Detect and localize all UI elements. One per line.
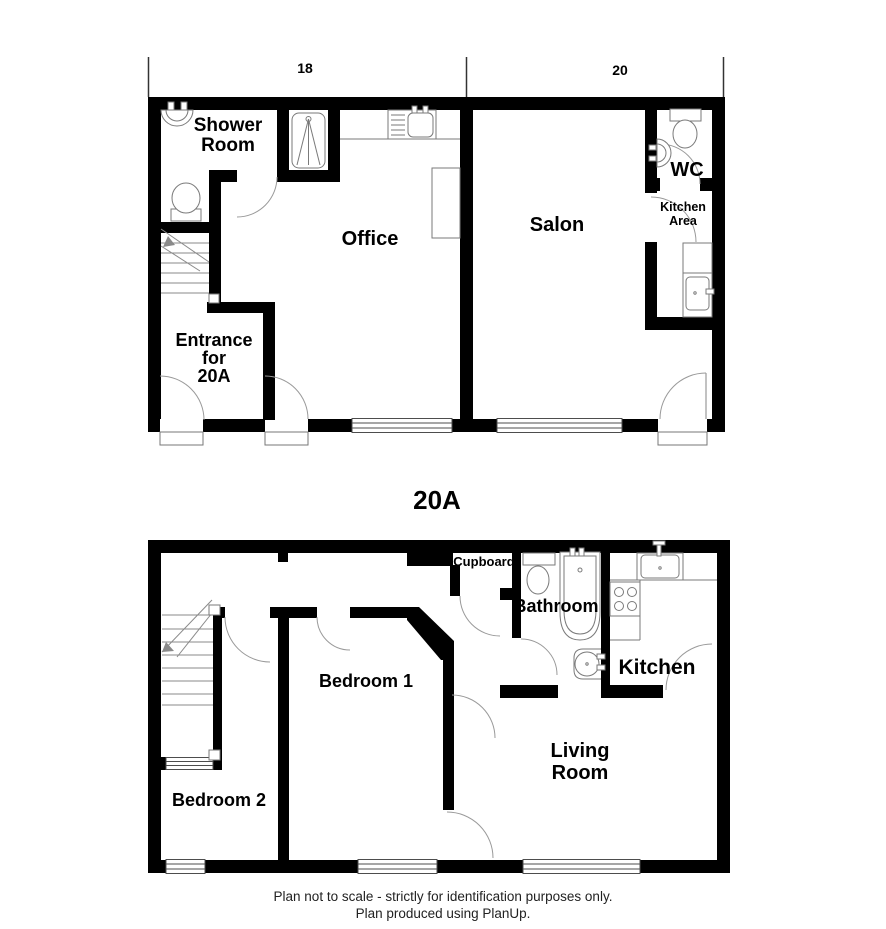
living-room-window: [523, 860, 640, 874]
footer-disclaimer: Plan not to scale - strictly for identif…: [274, 889, 613, 904]
floorplan-canvas: 18 20: [0, 0, 886, 929]
living-room-door-arc: [447, 812, 493, 858]
label-kitchen-area-line1: Kitchen: [660, 200, 706, 214]
cupboard-door-arc: [460, 596, 500, 636]
walls-lower: [148, 540, 730, 873]
label-kitchen: Kitchen: [618, 656, 695, 679]
hall-door-arc: [452, 695, 495, 738]
label-bedroom-2: Bedroom 2: [172, 790, 266, 810]
label-kitchen-area-line2: Area: [669, 214, 698, 228]
room-labels-upper: Shower Room Office Salon WC Kitchen Area…: [175, 115, 705, 386]
stairs-internal-window: [166, 758, 213, 770]
label-office: Office: [342, 228, 399, 250]
label-living-room-line1: Living: [551, 740, 610, 762]
dimension-label-20: 20: [612, 62, 628, 78]
hob-icon: [610, 580, 717, 640]
label-bathroom: Bathroom: [514, 596, 599, 616]
label-shower-room-line2: Room: [201, 135, 255, 156]
salon-door-threshold: [658, 432, 707, 445]
dimension-annotations: 18 20: [149, 57, 724, 97]
label-entrance-line1: Entrance: [175, 330, 252, 350]
label-entrance-line3: 20A: [197, 366, 230, 386]
bedroom2-window: [166, 860, 205, 874]
floorplan-page: 18 20: [0, 0, 886, 929]
shower-tray-icon: [292, 113, 325, 168]
dimension-label-18: 18: [297, 60, 313, 76]
stairs-lower-icon: [162, 600, 220, 760]
footer-credit: Plan produced using PlanUp.: [356, 906, 531, 921]
entrance-door-threshold: [160, 432, 203, 445]
bathroom-sink-icon: [574, 649, 605, 679]
shower-room-door-arc: [237, 177, 277, 217]
label-salon: Salon: [530, 214, 584, 236]
footer: Plan not to scale - strictly for identif…: [274, 889, 613, 921]
office-unit: [432, 168, 460, 238]
wc-toilet-icon: [670, 109, 701, 148]
doors-lower: [225, 596, 712, 858]
lower-floor-plan: 20A: [148, 485, 730, 874]
bedroom1-door-arc: [317, 617, 350, 650]
bedroom1-window: [358, 860, 437, 874]
office-sink-icon: [340, 106, 460, 139]
label-entrance-line2: for: [202, 348, 226, 368]
upper-floor-plan: 18 20: [148, 57, 725, 445]
label-cupboard: Cupboard: [453, 554, 514, 569]
lower-plan-title: 20A: [413, 485, 461, 515]
label-living-room-line2: Room: [552, 762, 609, 784]
kitchen-area-counter-icon: [683, 243, 714, 317]
bathroom-toilet-icon: [523, 553, 555, 594]
label-bedroom-1: Bedroom 1: [319, 671, 413, 691]
office-door-threshold: [265, 432, 308, 445]
bedroom2-door-arc: [225, 617, 270, 662]
label-wc: WC: [670, 159, 703, 181]
bathtub-icon: [560, 548, 600, 640]
label-shower-room-line1: Shower: [194, 115, 263, 136]
salon-door-arc: [660, 373, 706, 419]
office-window: [352, 419, 452, 433]
salon-window: [497, 419, 622, 433]
bathroom-door-arc: [521, 639, 557, 675]
toilet-icon: [171, 183, 201, 221]
